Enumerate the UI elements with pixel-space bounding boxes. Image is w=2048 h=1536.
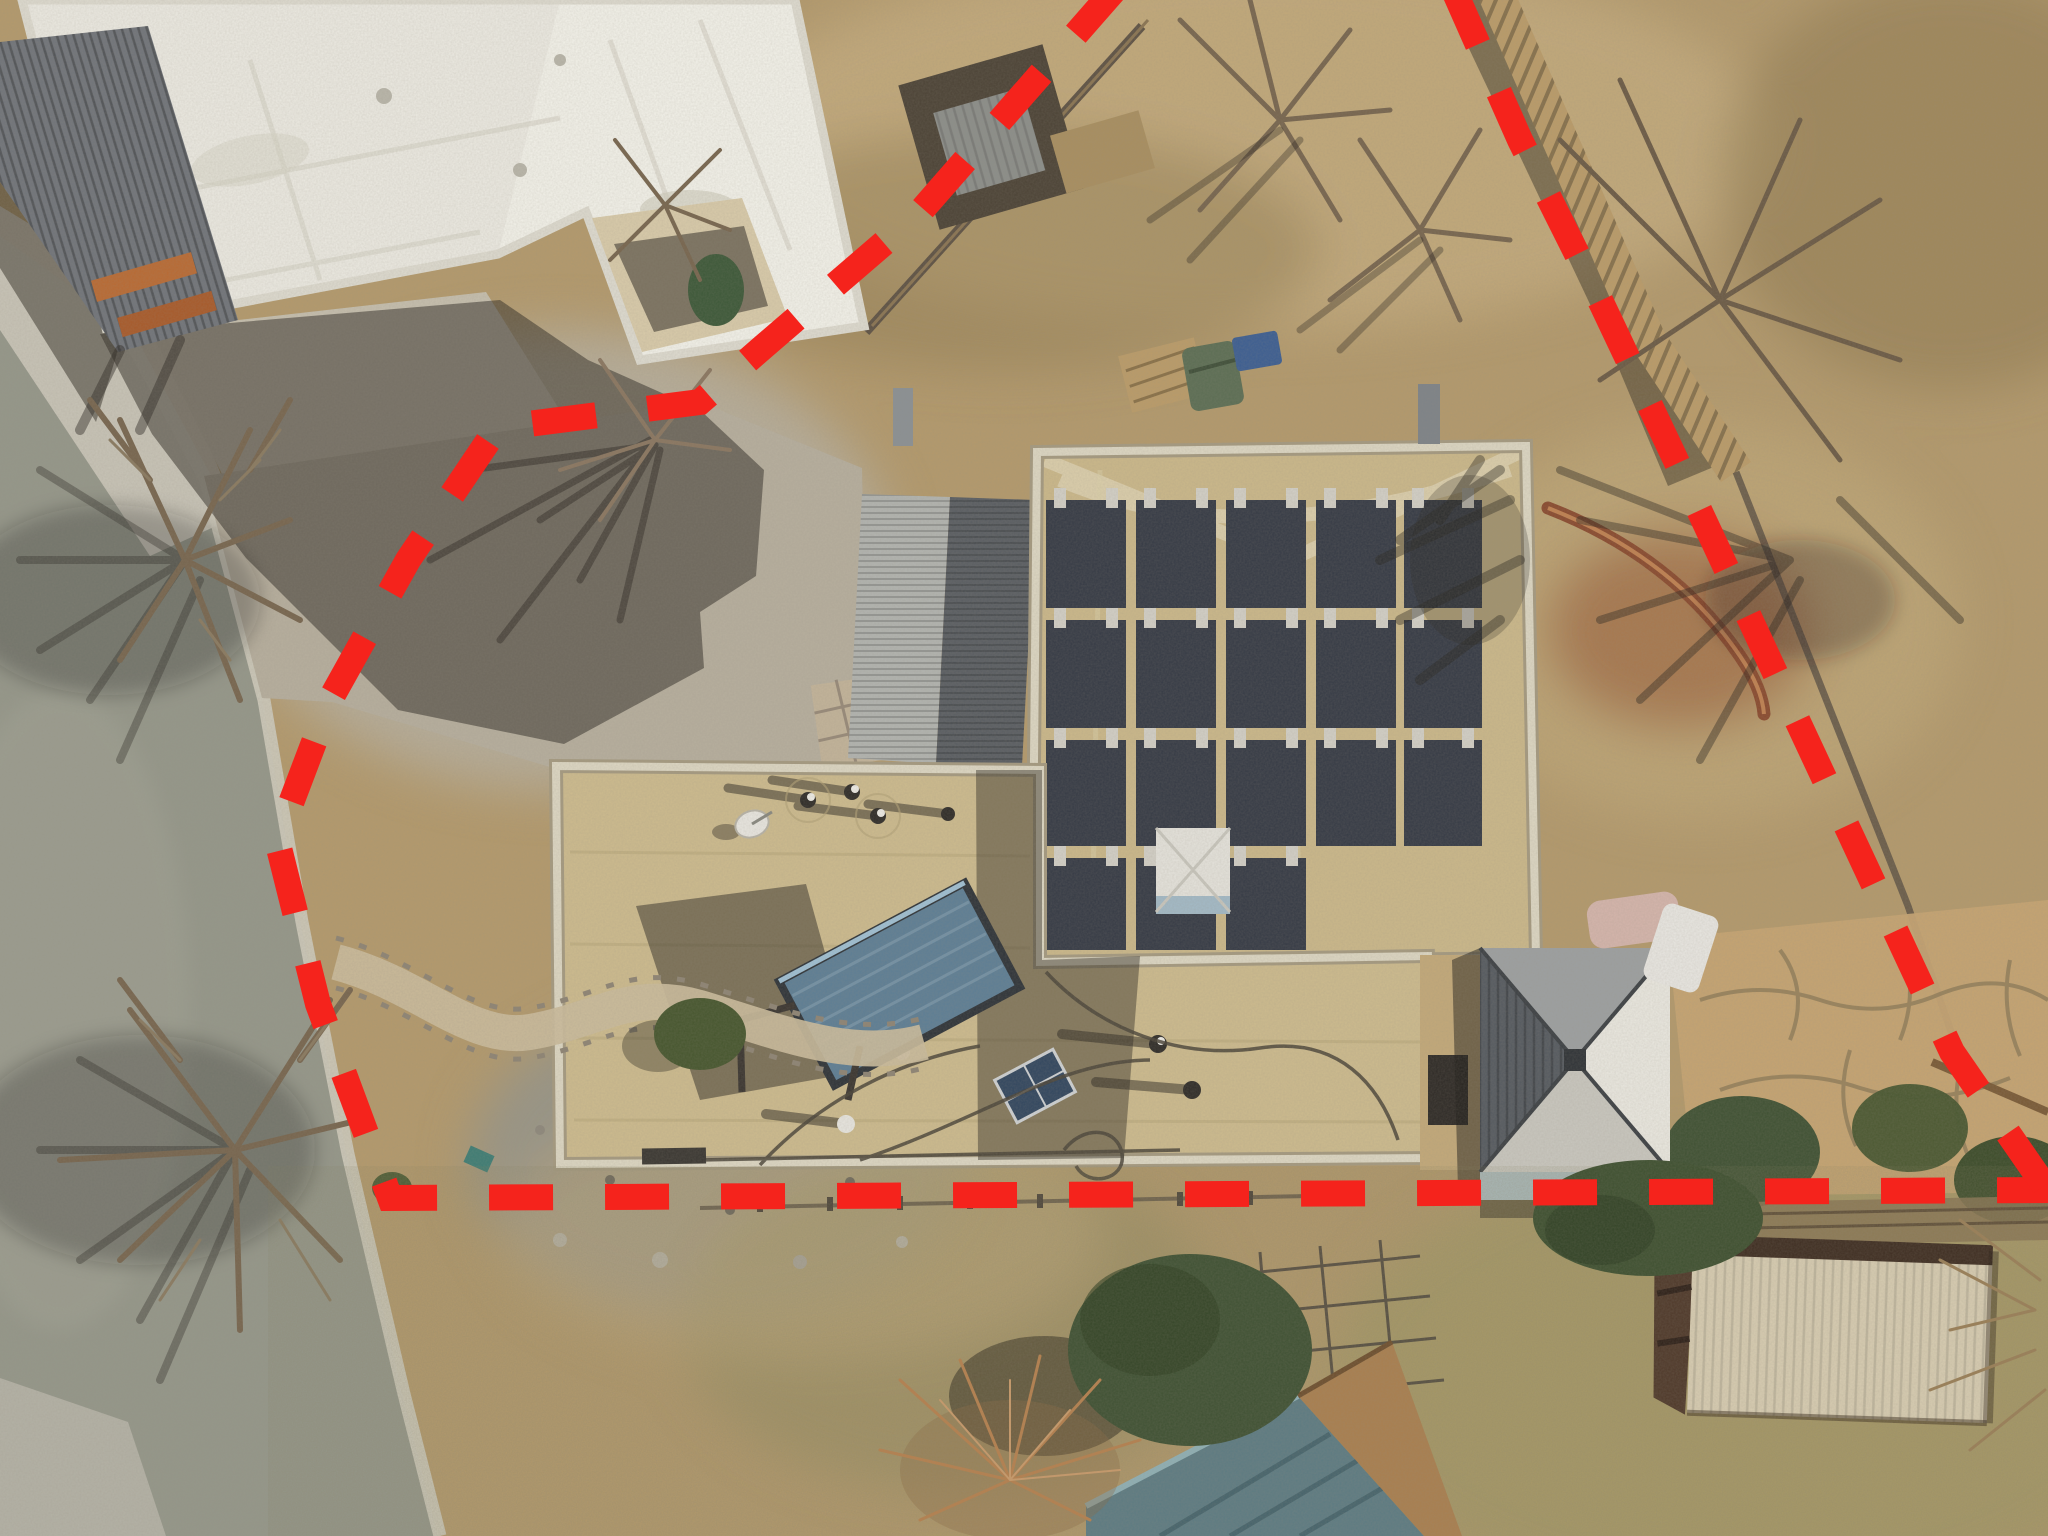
solar-panel	[1046, 740, 1126, 846]
vent-cap	[807, 793, 815, 801]
panel-mount-bracket	[1196, 608, 1208, 628]
patio-bush-2	[1852, 1084, 1968, 1172]
panel-mount-bracket	[1324, 608, 1336, 628]
panel-mount-bracket	[1324, 488, 1336, 508]
courtyard-bush	[688, 254, 744, 326]
vent-cap	[877, 809, 885, 817]
pvc-vent	[837, 1115, 855, 1133]
panel-mount-bracket	[1324, 728, 1336, 748]
panel-mount-bracket	[1196, 728, 1208, 748]
panel-mount-bracket	[1376, 488, 1388, 508]
overhang-tree-dark	[1545, 1195, 1655, 1265]
solar-panel	[1046, 620, 1126, 728]
panel-mount-bracket	[1286, 488, 1298, 508]
solar-panel	[1226, 620, 1306, 728]
studio-roof-shadow-blob	[1410, 475, 1530, 645]
panel-mount-bracket	[1286, 608, 1298, 628]
vent-pipe	[941, 807, 955, 821]
panel-mount-bracket	[1196, 488, 1208, 508]
panel-mount-bracket	[1412, 728, 1424, 748]
panel-mount-bracket	[1286, 728, 1298, 748]
solar-panel	[1226, 740, 1306, 846]
panel-mount-bracket	[1234, 488, 1246, 508]
parapet-dark-band	[642, 1147, 706, 1164]
solar-panel	[1136, 500, 1216, 608]
panel-mount-bracket	[1234, 728, 1246, 748]
panel-mount-bracket	[1234, 608, 1246, 628]
panel-mount-bracket	[1412, 488, 1424, 508]
roof-vent-1	[376, 88, 392, 104]
panel-mount-bracket	[1106, 728, 1118, 748]
solar-panel	[1316, 620, 1396, 728]
rock	[535, 1125, 545, 1135]
panel-mount-bracket	[1054, 488, 1066, 508]
aerial-photo-canvas	[0, 0, 2048, 1536]
panel-mount-bracket	[1144, 608, 1156, 628]
panel-mount-bracket	[1234, 846, 1246, 866]
panel-mount-bracket	[1106, 846, 1118, 866]
solar-panel	[1046, 500, 1126, 608]
aerial-photo	[0, 0, 2048, 1536]
panel-mount-bracket	[1054, 608, 1066, 628]
metal-roof-ribs	[848, 494, 1036, 766]
panel-mount-bracket	[1054, 846, 1066, 866]
solar-panel	[1226, 858, 1306, 950]
solar-panel	[1226, 500, 1306, 608]
roof-vent-3	[554, 54, 566, 66]
solar-panel	[1136, 620, 1216, 728]
solar-panel	[1046, 858, 1126, 950]
panel-mount-bracket	[1376, 608, 1388, 628]
juniper-tree-dark	[1080, 1264, 1220, 1376]
shed-roof-ribs	[1687, 1241, 1993, 1423]
rock	[605, 1175, 615, 1185]
panel-mount-bracket	[1054, 728, 1066, 748]
panel-mount-bracket	[1462, 728, 1474, 748]
panel-mount-bracket	[1286, 846, 1298, 866]
roof-pipe-north-2	[1418, 384, 1440, 444]
yard-bush	[654, 998, 746, 1070]
vent-cap	[851, 785, 859, 793]
panel-mount-bracket	[1376, 728, 1388, 748]
panel-mount-bracket	[1106, 488, 1118, 508]
panel-mount-bracket	[1106, 608, 1118, 628]
roof-pipe-north-1	[893, 388, 913, 446]
roof-vent-2	[513, 163, 527, 177]
gazebo-hub	[1564, 1049, 1586, 1071]
panel-mount-bracket	[1144, 728, 1156, 748]
solar-panel	[1404, 740, 1482, 846]
panel-mount-bracket	[1144, 846, 1156, 866]
panel-mount-bracket	[1144, 488, 1156, 508]
vent-pipe	[1183, 1081, 1201, 1099]
solar-panel	[1316, 740, 1396, 846]
